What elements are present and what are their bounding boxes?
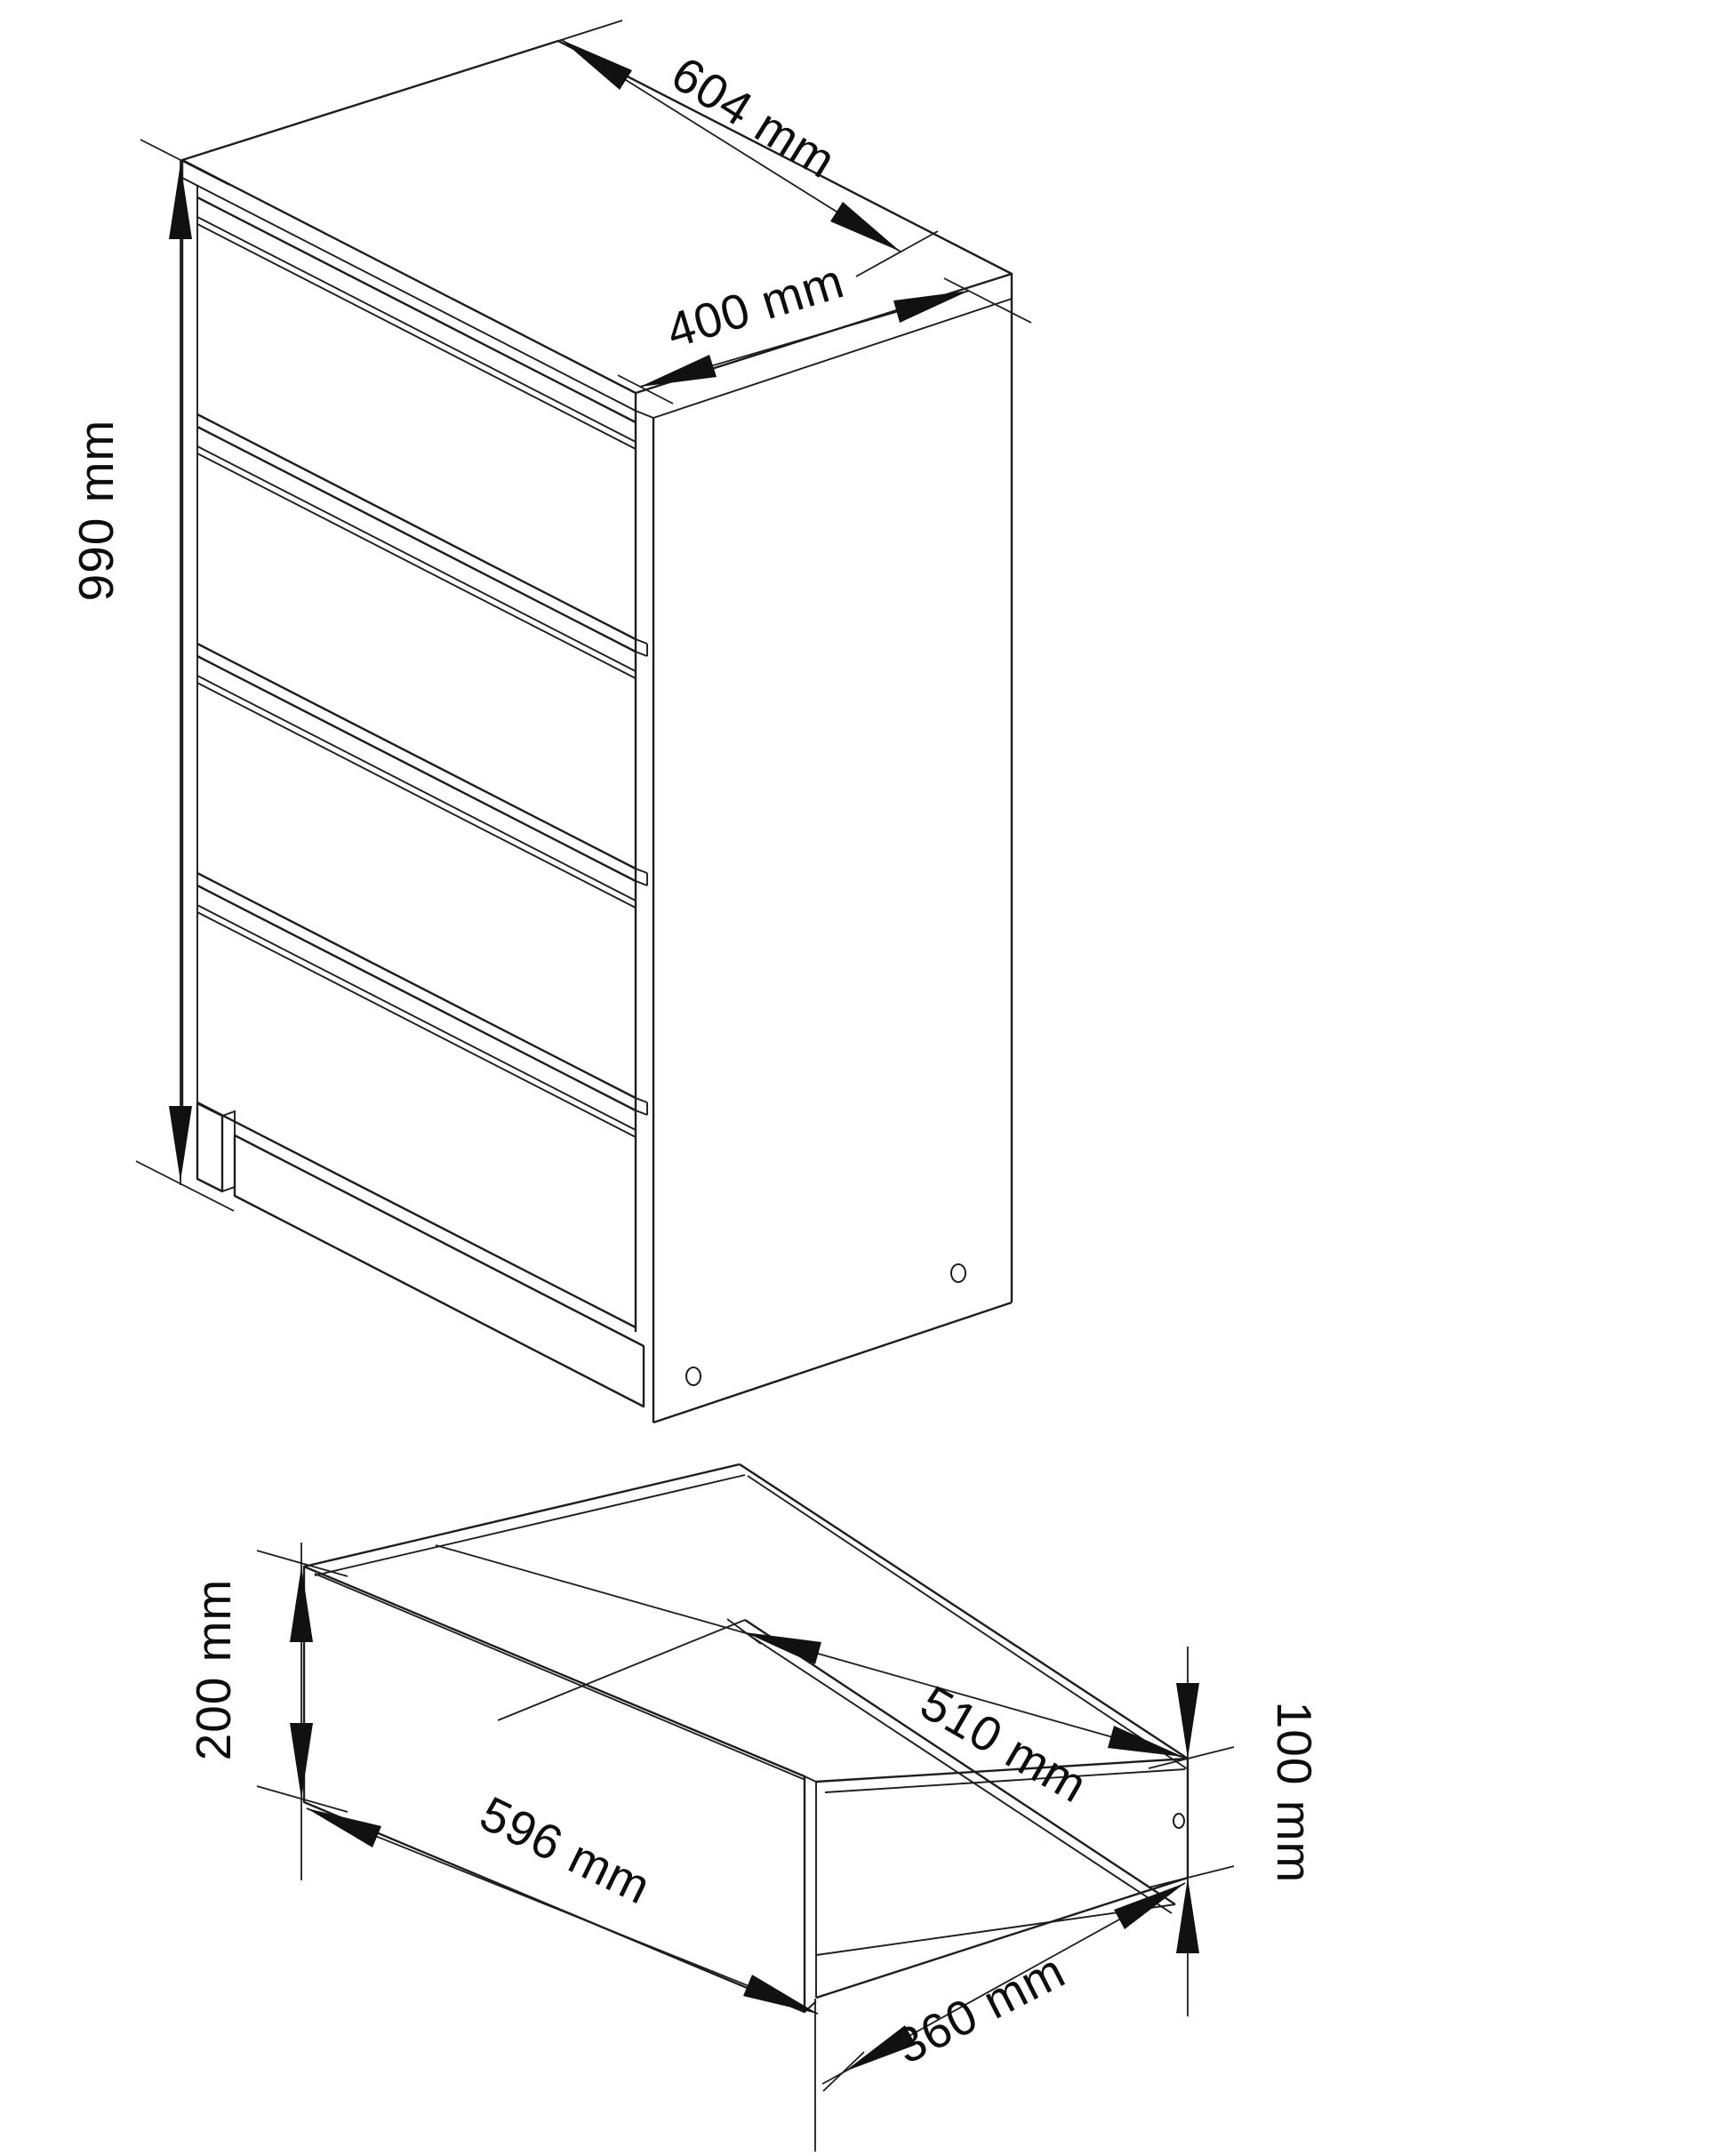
technical-drawing-page: 990 mm 604 mm 400 mm xyxy=(0,0,1730,2156)
front-left-leg-side xyxy=(222,1111,235,1191)
cabinet-base xyxy=(197,1103,644,1407)
drawer-drawing: 200 mm 596 mm 510 mm 360 mm xyxy=(186,1464,1322,2152)
left-side-top-inner xyxy=(315,1475,745,1575)
floor-back-edge xyxy=(745,1620,1175,1904)
drawer-side-panel xyxy=(816,1759,1188,1998)
drawer-bottom-depth-label: 360 mm xyxy=(886,1943,1074,2074)
dim-arrow xyxy=(1176,1878,1199,1953)
drawer-gap-notches xyxy=(636,639,647,1115)
dim-drawer-side-length: 510 mm xyxy=(436,1545,1185,1814)
drawer-bottom-edge xyxy=(197,1102,636,1327)
drawer-front-2 xyxy=(197,427,636,869)
dim-arrow xyxy=(169,164,192,239)
drawer-groove xyxy=(197,224,636,449)
drawer-top-edge xyxy=(197,656,636,881)
drawer-front-width-label: 596 mm xyxy=(472,1785,660,1914)
drawer-top-edge xyxy=(197,427,636,652)
dim-arrow xyxy=(745,1632,821,1664)
drawer-bottom-edge xyxy=(197,873,636,1098)
dim-drawer-front-width: 596 mm xyxy=(307,1785,818,2152)
cam-lock-hole xyxy=(686,1367,701,1385)
cam-lock-hole xyxy=(951,1264,965,1282)
gap-notch xyxy=(636,1098,647,1115)
drawer-bottom-edge xyxy=(197,414,636,639)
dim-arrow xyxy=(169,1106,192,1182)
dim-drawer-front-height: 200 mm xyxy=(186,1543,348,1880)
drawer-groove xyxy=(197,905,636,1130)
dim-arrow xyxy=(743,1975,818,2014)
cabinet-top-face xyxy=(182,20,1012,418)
dim-arrow xyxy=(290,1723,313,1799)
drawing-canvas: 990 mm 604 mm 400 mm xyxy=(0,0,1730,2156)
dim-arrow xyxy=(290,1567,313,1642)
drawer-groove xyxy=(197,676,636,901)
cabinet-width-label: 604 mm xyxy=(662,45,845,188)
ext-tick xyxy=(136,1161,234,1211)
dim-cabinet-depth: 400 mm xyxy=(618,252,1031,404)
drawer-interior xyxy=(304,1464,1188,1955)
floor-front-boundary xyxy=(498,1620,745,1720)
drawer-top-edge xyxy=(197,197,636,422)
drawer-front-1 xyxy=(197,197,636,639)
side-bottom-edge xyxy=(653,1302,1012,1423)
cabinet-front-face xyxy=(182,160,653,1423)
dim-arrow xyxy=(893,291,969,323)
left-side-top-edge xyxy=(304,1464,740,1567)
drawer-front-height-label: 200 mm xyxy=(186,1579,241,1761)
cam-lock-hole xyxy=(1173,1814,1184,1828)
drawer-groove xyxy=(197,453,636,678)
front-panel-outline xyxy=(304,1567,805,2012)
ext-tick xyxy=(823,2052,864,2091)
dim-arrow xyxy=(562,40,632,90)
dim-cabinet-height: 990 mm xyxy=(68,140,234,1211)
drawer-groove xyxy=(197,446,636,671)
drawer-groove xyxy=(197,683,636,908)
dim-drawer-bottom-depth: 360 mm xyxy=(822,1883,1185,2091)
ext-tick xyxy=(140,140,229,185)
ext-tick xyxy=(1149,1866,1234,1888)
top-panel-front-band xyxy=(182,178,636,411)
drawer-front-3 xyxy=(197,656,636,1098)
front-left-leg xyxy=(197,1103,222,1191)
dim-arrow xyxy=(307,1808,381,1847)
cabinet-drawing: 990 mm 604 mm 400 mm xyxy=(68,20,1031,1423)
top-panel-corner-step xyxy=(636,411,653,418)
dim-arrow xyxy=(830,202,901,252)
dim-arrow xyxy=(640,355,717,387)
dim-cabinet-width: 604 mm xyxy=(562,40,938,277)
drawer-groove xyxy=(197,912,636,1137)
drawer-groove xyxy=(197,217,636,442)
cabinet-height-label: 990 mm xyxy=(68,420,124,602)
gap-notch xyxy=(636,639,647,656)
dim-drawer-side-height: 100 mm xyxy=(1149,1647,1322,2016)
ext-tick xyxy=(856,231,938,277)
drawer-front-panel xyxy=(304,1567,816,2012)
drawer-side-height-label: 100 mm xyxy=(1267,1702,1322,1884)
plinth-rail xyxy=(235,1135,644,1407)
cabinet-depth-label: 400 mm xyxy=(661,252,851,358)
drawer-bottom-edge xyxy=(197,644,636,869)
drawer-top-edge xyxy=(197,886,636,1110)
ext-tick xyxy=(727,1619,761,1644)
front-panel-thickness-edge xyxy=(805,1776,816,2012)
back-edge-extension xyxy=(558,20,622,41)
front-panel-top-band xyxy=(315,1574,805,1780)
cabinet-side-panel xyxy=(653,274,1012,1423)
gap-notch xyxy=(636,869,647,886)
drawer-front-4 xyxy=(197,886,636,1327)
dim-arrow xyxy=(1176,1683,1199,1759)
